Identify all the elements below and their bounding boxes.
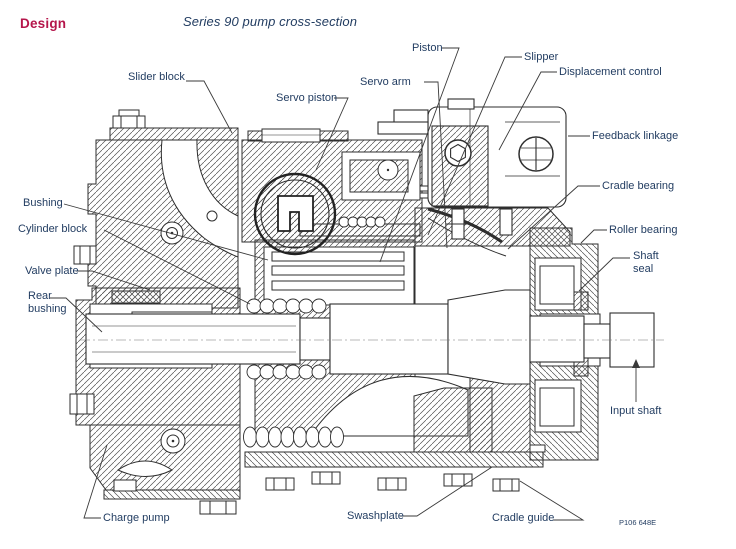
section-heading: Design: [20, 16, 66, 31]
page: Design Series 90 pump cross-section Slid…: [0, 0, 736, 549]
label-roller-bearing: Roller bearing: [609, 224, 677, 237]
label-slider-block: Slider block: [128, 71, 185, 84]
label-cradle-bearing: Cradle bearing: [602, 180, 674, 193]
label-feedback-linkage: Feedback linkage: [592, 130, 678, 143]
label-cradle-guide: Cradle guide: [492, 512, 554, 525]
label-cylinder-block: Cylinder block: [18, 223, 87, 236]
label-servo-piston: Servo piston: [276, 92, 337, 105]
label-shaft-seal: Shaft seal: [633, 250, 677, 276]
label-piston: Piston: [412, 42, 443, 55]
figure-code: P106 648E: [619, 518, 656, 527]
label-slipper: Slipper: [524, 51, 558, 64]
label-servo-arm: Servo arm: [360, 76, 411, 89]
label-displacement-control: Displacement control: [559, 66, 662, 79]
label-input-shaft: Input shaft: [610, 405, 661, 418]
label-charge-pump: Charge pump: [103, 512, 170, 525]
label-swashplate: Swashplate: [347, 510, 404, 523]
label-bushing: Bushing: [23, 197, 63, 210]
label-rear-bushing: Rear bushing: [28, 290, 82, 316]
shaft-seal-part: [574, 292, 588, 310]
label-valve-plate: Valve plate: [25, 265, 79, 278]
figure-title: Series 90 pump cross-section: [183, 14, 357, 29]
